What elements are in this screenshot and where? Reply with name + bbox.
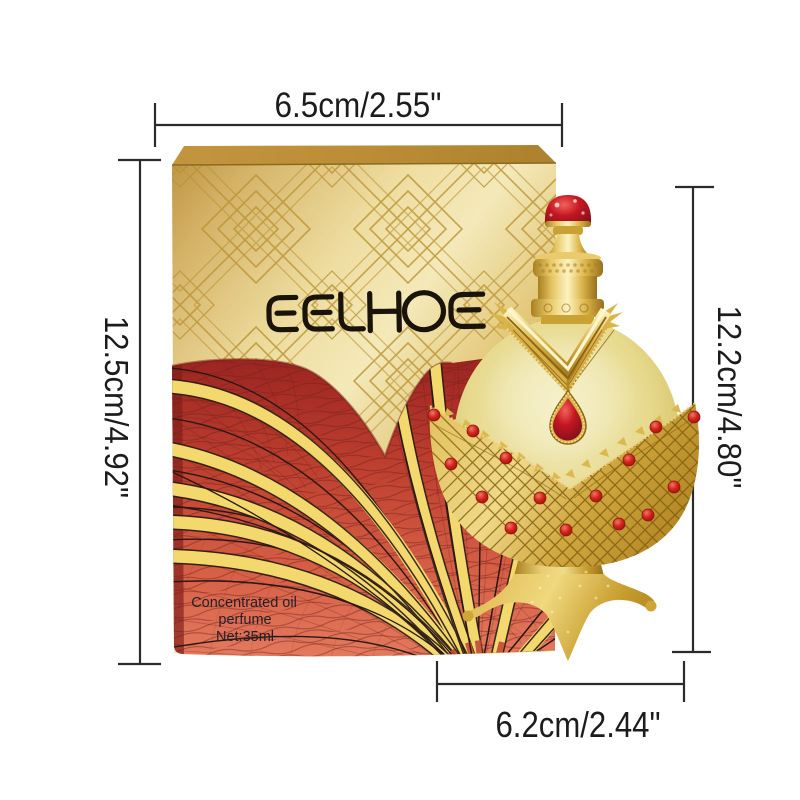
- svg-text:perfume: perfume: [218, 612, 271, 628]
- svg-text:6.2cm/2.44": 6.2cm/2.44": [496, 704, 661, 745]
- svg-text:12.5cm/4.92": 12.5cm/4.92": [98, 316, 135, 498]
- svg-text:Net:35ml: Net:35ml: [216, 629, 274, 645]
- svg-text:6.5cm/2.55": 6.5cm/2.55": [275, 86, 442, 125]
- svg-text:12.2cm/4.80": 12.2cm/4.80": [711, 306, 748, 489]
- svg-text:Concentrated oil: Concentrated oil: [191, 595, 297, 611]
